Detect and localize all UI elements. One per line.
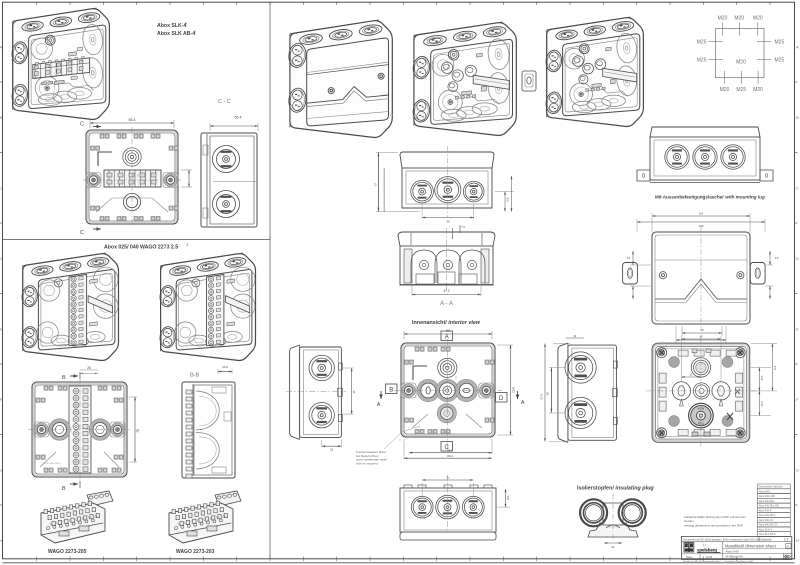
svg-text:Massblatt/ dimension sheet: Massblatt/ dimension sheet <box>725 543 777 548</box>
svg-text:Verwendeter Varianten: Verwendeter Varianten <box>759 486 784 489</box>
svg-text:56.4: 56.4 <box>235 116 242 120</box>
svg-text:A - A: A - A <box>440 301 453 307</box>
svg-text:89.4: 89.4 <box>447 454 453 458</box>
svg-text:missing dimensions are provide: missing dimensions are provided in the D… <box>684 523 743 527</box>
svg-text:C: C <box>80 122 84 128</box>
svg-text:Abox 040-2.5¹: Abox 040-2.5¹ <box>759 519 774 522</box>
svg-text:M25: M25 <box>775 40 785 46</box>
svg-text:1:1: 1:1 <box>784 538 789 542</box>
svg-text:Gezeichnet: Spelsberg GmbH: Gezeichnet: Spelsberg GmbH <box>724 560 753 563</box>
svg-text:spelsberg: spelsberg <box>697 548 717 553</box>
svg-text:M20: M20 <box>753 87 763 93</box>
svg-text:M20: M20 <box>736 60 746 66</box>
svg-text:58.9: 58.9 <box>447 449 453 453</box>
svg-text:24.5: 24.5 <box>761 401 764 406</box>
svg-text:Abox 040 AB-L: Abox 040 AB-L <box>759 500 776 503</box>
svg-text:i i: i i <box>703 543 706 547</box>
svg-text:D: D <box>796 256 799 261</box>
svg-text:Abox 040 AB-4¹: Abox 040 AB-4¹ <box>759 514 776 517</box>
svg-text:Abox 040 AB-2.5¹: Abox 040 AB-2.5¹ <box>759 524 778 527</box>
svg-text:C: C <box>80 230 84 236</box>
svg-text:2: 2 <box>194 30 196 34</box>
svg-text:Abox SLK-4¹: Abox SLK-4¹ <box>759 528 773 531</box>
svg-text:H: H <box>0 538 2 543</box>
svg-text:50: 50 <box>700 328 704 332</box>
svg-text:B-B: B-B <box>190 373 200 379</box>
svg-text:A: A <box>445 334 449 340</box>
svg-text:Abox SLK AB-4: Abox SLK AB-4 <box>157 31 195 37</box>
svg-text:Name: Name <box>686 556 693 559</box>
svg-text:M25: M25 <box>697 58 707 64</box>
svg-text:B: B <box>389 387 393 393</box>
svg-text:u-PP-460v DP6x: u-PP-460v DP6x <box>44 463 61 465</box>
svg-text:57: 57 <box>374 183 378 187</box>
svg-text:Maßstab: Maßstab <box>762 538 772 541</box>
svg-text:M25: M25 <box>697 40 707 46</box>
svg-text:22: 22 <box>330 448 334 452</box>
svg-text:M20: M20 <box>720 87 730 93</box>
svg-text:2: 2 <box>187 243 189 247</box>
svg-text:M25: M25 <box>775 58 785 64</box>
svg-text:2: 2 <box>185 22 187 26</box>
svg-text:45: 45 <box>352 390 356 394</box>
svg-text:B: B <box>0 115 2 120</box>
svg-text:B: B <box>796 115 799 120</box>
svg-text:114: 114 <box>699 212 704 216</box>
svg-text:M-ABox-040: M-ABox-040 <box>726 555 743 559</box>
svg-text:Abox 040: Abox 040 <box>726 549 739 553</box>
svg-text:Abox 040-4¹: Abox 040-4¹ <box>759 509 772 512</box>
svg-text:C200: C200 <box>512 386 516 393</box>
svg-text:C: C <box>796 186 799 191</box>
svg-text:G: G <box>796 468 799 473</box>
svg-text:Erstellt mit CAD. Nicht manuel: Erstellt mit CAD. Nicht manuell ändern! <box>683 560 721 563</box>
svg-text:PG21: PG21 <box>698 423 705 426</box>
svg-text:M-TW: M-TW <box>698 407 705 410</box>
svg-text:1:1: 1:1 <box>390 114 394 117</box>
svg-text:B: B <box>62 486 66 492</box>
svg-text:Abox 040-L/SB: Abox 040-L/SB <box>759 495 775 498</box>
svg-text:E: E <box>0 327 2 332</box>
svg-text:WAGO 2273-205: WAGO 2273-205 <box>48 549 87 555</box>
svg-text:C - C: C - C <box>218 99 231 105</box>
svg-text:D: D <box>0 256 2 261</box>
svg-text:47.2: 47.2 <box>443 289 449 293</box>
svg-text:Abox 040-L: Abox 040-L <box>759 490 772 493</box>
svg-text:M25: M25 <box>736 87 746 93</box>
svg-text:10-05: 10-05 <box>706 556 713 559</box>
svg-text:C: C <box>0 186 2 191</box>
svg-text:7.5: 7.5 <box>461 225 465 229</box>
svg-text:Isolierstopfen/ insulating plu: Isolierstopfen/ insulating plug <box>577 486 654 492</box>
svg-text:A: A <box>796 45 799 50</box>
svg-text:with mounting lug: with mounting lug <box>725 195 765 200</box>
svg-text:Schutzvermerk ISO 16016 beach: Schutzvermerk ISO 16016 beachten. Refer … <box>683 538 763 541</box>
svg-text:WAGO 2273-203: WAGO 2273-203 <box>176 549 215 555</box>
svg-text:Abox 025/ 040 WAGO 2273 2.5: Abox 025/ 040 WAGO 2273 2.5 <box>104 245 178 251</box>
svg-text:76: 76 <box>136 429 140 433</box>
svg-text:26: 26 <box>87 366 91 370</box>
svg-text:hole as required: hole as required <box>356 461 378 465</box>
svg-text:D: D <box>499 396 504 402</box>
svg-text:werden: werden <box>684 519 694 523</box>
svg-text:24.5: 24.5 <box>761 375 764 380</box>
svg-text:36: 36 <box>446 220 450 224</box>
svg-text:30.6: 30.6 <box>222 365 228 369</box>
svg-text:F: F <box>788 544 790 548</box>
svg-text:45: 45 <box>546 392 550 396</box>
svg-text:M20: M20 <box>734 16 744 22</box>
svg-text:Innenansicht/ interior view: Innenansicht/ interior view <box>412 320 481 326</box>
svg-text:11: 11 <box>574 334 577 338</box>
svg-text:Abox SLK AB-4¹: Abox SLK AB-4¹ <box>759 533 776 536</box>
svg-text:57.4: 57.4 <box>540 394 544 400</box>
svg-text:Mit Aussenbefestigungslasche/: Mit Aussenbefestigungslasche/ <box>655 195 724 200</box>
svg-text:90: 90 <box>446 329 450 333</box>
svg-text:H: H <box>796 538 799 543</box>
svg-text:10.5: 10.5 <box>507 197 510 202</box>
svg-text:G: G <box>0 468 2 473</box>
svg-text:B: B <box>62 375 66 381</box>
svg-text:M20: M20 <box>753 16 763 22</box>
svg-text:56.4: 56.4 <box>129 118 136 122</box>
svg-text:18.5: 18.5 <box>507 495 510 500</box>
svg-text:Abox SLK-4: Abox SLK-4 <box>157 23 187 29</box>
svg-text:E: E <box>796 327 799 332</box>
svg-text:Abox 040 AB-L/SB: Abox 040 AB-L/SB <box>759 505 779 508</box>
svg-text:M20: M20 <box>718 16 728 22</box>
svg-text:M-5: M-5 <box>774 365 777 370</box>
svg-text:21: 21 <box>611 545 615 549</box>
svg-text:A: A <box>0 45 2 50</box>
